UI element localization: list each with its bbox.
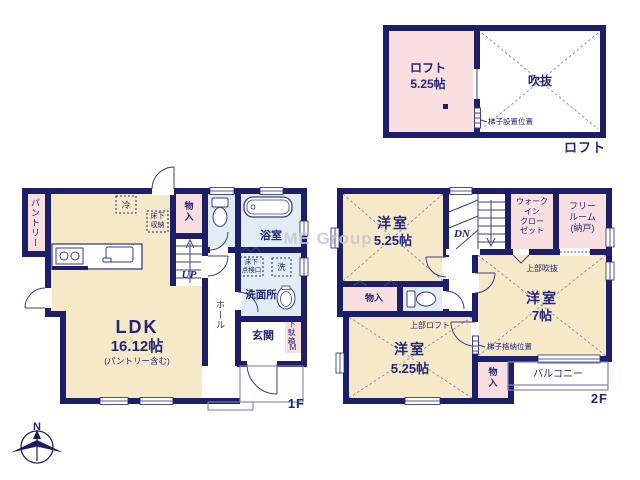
washer-label: 洗	[274, 262, 289, 272]
hall-label: ホール	[214, 300, 225, 340]
loft-ladder-label: 梯子設置位置	[488, 117, 548, 126]
bedroom-nw-name: 洋室	[353, 215, 433, 232]
bathtub	[244, 197, 292, 217]
storage-2f-west-label: 物入	[352, 293, 396, 304]
kitchen-counter	[52, 244, 142, 269]
stairs-up-label: UP	[176, 269, 202, 282]
balcony-label: バルコニー	[520, 369, 596, 381]
floor1-label: 1F	[275, 396, 305, 412]
bedroom-e-area: 7帖	[512, 308, 572, 324]
bedroom-nw-area: 5.25帖	[353, 233, 433, 249]
floor2-label: 2F	[578, 391, 608, 407]
washroom-label: 洗面所	[241, 289, 281, 302]
underfloor-hatch-label: 床下 点検口	[240, 259, 263, 275]
bedroom-s-area: 5.25帖	[370, 361, 450, 377]
ladder-storage-label: 梯子格納位置	[487, 342, 545, 351]
storage-1f-label: 物 入	[178, 201, 200, 223]
shoe-cabinet-size: M	[286, 343, 300, 353]
wic-label: ウォーク イン クロー ゼット	[509, 197, 555, 236]
fridge-label: 冷	[118, 200, 134, 210]
ldk-area: 16.12帖	[77, 338, 197, 356]
free-room-label: フリー ルーム (納戸)	[559, 201, 606, 234]
loft-floor-label: ロフト	[556, 140, 606, 156]
toilet-2f	[407, 291, 436, 307]
bedroom-e-name: 洋室	[512, 290, 572, 307]
loft-room-name: ロフト	[398, 61, 458, 76]
ldk-note: (パントリー含む)	[77, 356, 197, 366]
compass-north-label: N	[29, 421, 45, 434]
stairs-dn-label: DN	[448, 228, 476, 241]
storage-2f-south-label: 物 入	[483, 367, 503, 389]
entrance-label: 玄関	[245, 330, 281, 343]
compass-icon	[11, 430, 63, 463]
underfloor-storage-label: 床下 収納	[147, 213, 168, 230]
loft-room-area: 5.25帖	[398, 77, 458, 92]
toilet-1f	[212, 198, 228, 227]
upper-loft-label: 上部ロフト	[406, 321, 454, 331]
bath-label: 浴室	[245, 230, 297, 243]
void-label: 吹抜	[512, 74, 568, 89]
loft-post-mark	[443, 104, 448, 109]
ldk-name: LDK	[77, 317, 197, 339]
bedroom-s-name: 洋室	[370, 341, 450, 358]
pantry-label: パントリー	[29, 198, 40, 250]
floorplan-page: ME Group ロフト 5.25帖 吹抜 梯子設置位置 ロフト パントリー 冷…	[0, 0, 640, 480]
upper-void-label: 上部吹抜	[512, 264, 572, 274]
